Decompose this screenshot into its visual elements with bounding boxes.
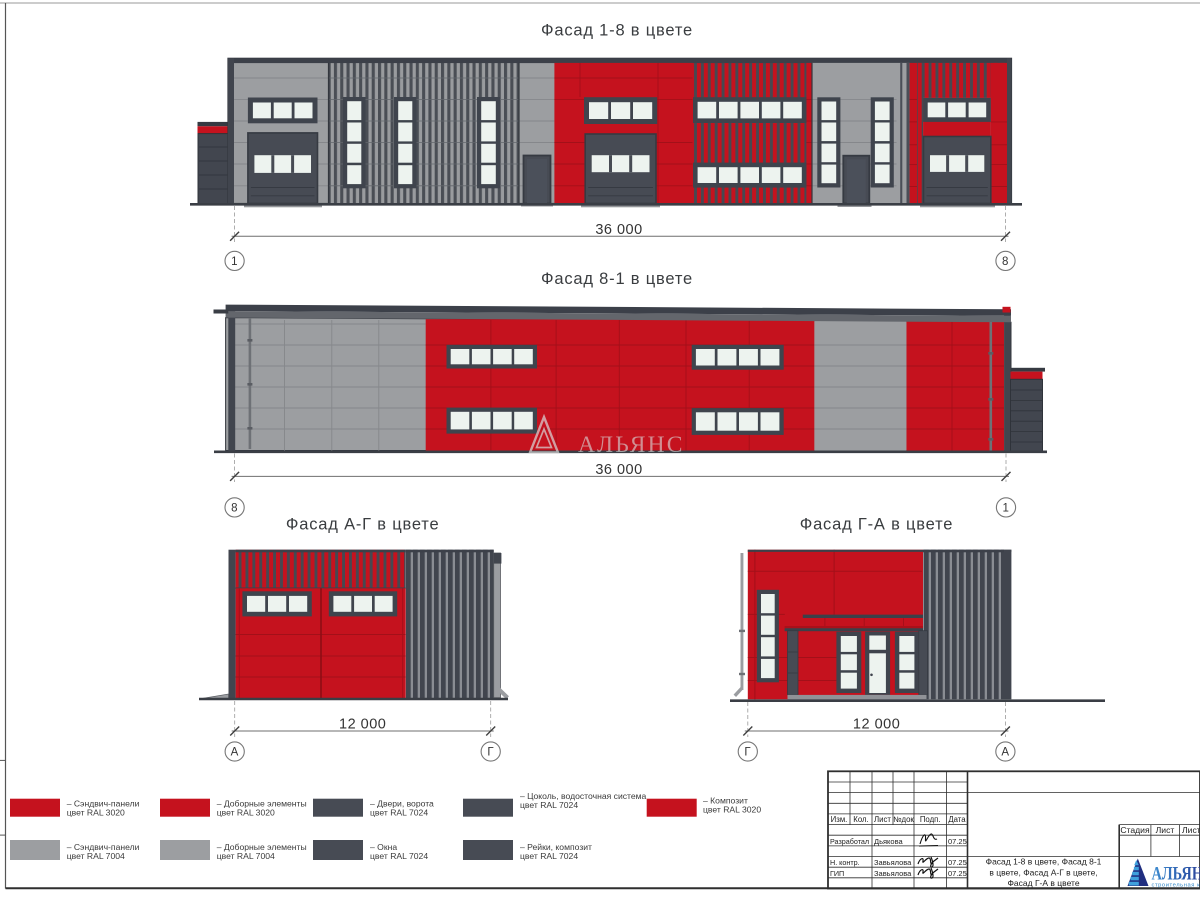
svg-text:цвет RAL 7024: цвет RAL 7024 — [370, 808, 428, 818]
svg-text:Разработал: Разработал — [830, 837, 869, 846]
svg-text:Фасад 1-8 в цвете: Фасад 1-8 в цвете — [541, 22, 693, 40]
svg-text:36 000: 36 000 — [595, 462, 642, 478]
svg-text:цвет RAL 7024: цвет RAL 7024 — [520, 800, 578, 810]
svg-text:цвет RAL 7004: цвет RAL 7004 — [217, 851, 275, 861]
svg-text:1: 1 — [231, 256, 238, 268]
svg-text:А: А — [1001, 747, 1009, 759]
svg-text:Кол.: Кол. — [853, 815, 868, 824]
svg-text:цвет RAL 7024: цвет RAL 7024 — [370, 851, 428, 861]
svg-text:Подп.: Подп. — [920, 815, 941, 824]
svg-text:Изм.: Изм. — [831, 815, 848, 824]
svg-text:АЛЬЯНС: АЛЬЯНС — [578, 432, 685, 458]
svg-text:12 000: 12 000 — [853, 717, 900, 733]
svg-text:Фасад 8-1 в цвете: Фасад 8-1 в цвете — [541, 270, 693, 288]
svg-text:АЛЬЯНС: АЛЬЯНС — [1152, 864, 1200, 885]
svg-text:Дата: Дата — [948, 815, 966, 824]
svg-text:Фасад А-Г в цвете: Фасад А-Г в цвете — [286, 516, 440, 534]
svg-text:Дьякова: Дьякова — [874, 837, 903, 846]
svg-text:Фасад Г-А в цвете: Фасад Г-А в цвете — [1007, 878, 1079, 888]
svg-text:8: 8 — [231, 503, 238, 515]
svg-text:цвет RAL 7024: цвет RAL 7024 — [520, 851, 578, 861]
svg-text:ГИП: ГИП — [830, 869, 844, 878]
svg-text:Г: Г — [744, 747, 751, 759]
svg-text:Н. контр.: Н. контр. — [830, 858, 860, 867]
svg-text:Стадия: Стадия — [1120, 825, 1150, 835]
svg-text:Фасад 1-8 в цвете, Фасад 8-1: Фасад 1-8 в цвете, Фасад 8-1 — [986, 856, 1102, 866]
svg-text:Завьялова: Завьялова — [874, 869, 912, 878]
svg-text:8: 8 — [1002, 256, 1009, 268]
svg-text:Фасад Г-А в цвете: Фасад Г-А в цвете — [800, 516, 954, 534]
svg-text:Листов: Листов — [1182, 825, 1200, 835]
svg-text:Г: Г — [487, 747, 494, 759]
svg-text:Завьялова: Завьялова — [874, 858, 912, 867]
svg-text:цвет RAL 3020: цвет RAL 3020 — [67, 808, 125, 818]
svg-text:07.25: 07.25 — [948, 869, 967, 878]
svg-text:строительная компания: строительная компания — [1152, 883, 1200, 889]
svg-text:А: А — [231, 747, 239, 759]
svg-text:07.25: 07.25 — [948, 858, 967, 867]
svg-text:цвет RAL 7004: цвет RAL 7004 — [67, 851, 125, 861]
svg-text:1: 1 — [1003, 503, 1010, 515]
svg-text:Лист: Лист — [1156, 825, 1175, 835]
svg-text:Лист: Лист — [874, 815, 891, 824]
svg-text:12 000: 12 000 — [339, 717, 386, 733]
svg-text:цвет RAL 3020: цвет RAL 3020 — [703, 805, 761, 815]
svg-text:№док: №док — [893, 815, 914, 824]
svg-text:36 000: 36 000 — [595, 222, 642, 238]
svg-text:в цвете, Фасад А-Г в цвете,: в цвете, Фасад А-Г в цвете, — [989, 868, 1097, 878]
svg-text:цвет RAL 3020: цвет RAL 3020 — [217, 808, 275, 818]
svg-text:07.25: 07.25 — [948, 837, 967, 846]
